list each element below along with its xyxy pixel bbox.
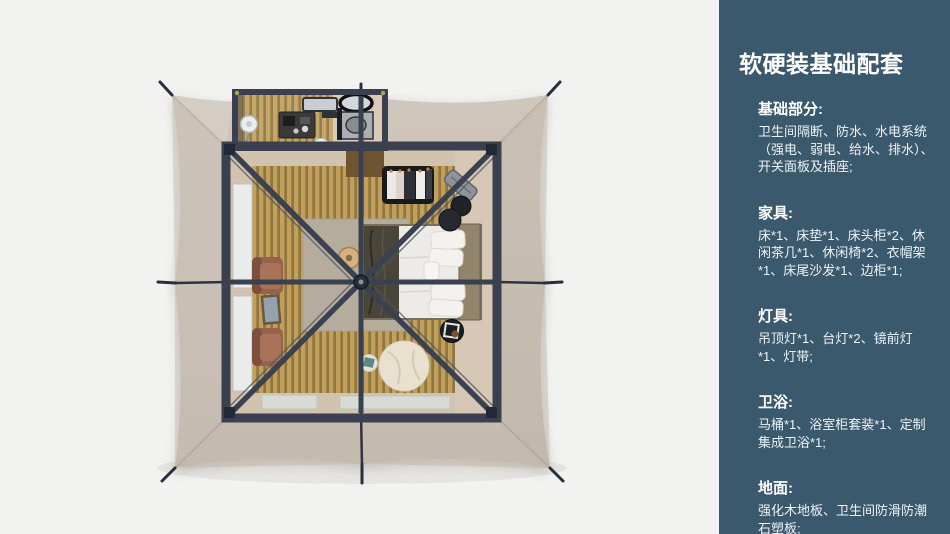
side-table (441, 320, 464, 343)
corner-cap-right (381, 91, 385, 95)
spec-section-basics: 基础部分: 卫生间隔断、防水、水电系统（强电、弱电、给水、排水）、开关面板及插座… (758, 98, 937, 176)
spec-body: 卫生间隔断、防水、水电系统（强电、弱电、给水、排水）、开关面板及插座; (758, 123, 937, 176)
spec-heading: 卫浴: (758, 391, 937, 412)
spec-body: 床*1、床垫*1、床头柜*2、休闲茶几*1、休闲椅*2、衣帽架*1、床尾沙发*1… (758, 227, 937, 280)
armchair-top (252, 257, 283, 294)
spec-heading: 灯具: (758, 305, 937, 326)
tent-top-view-render (0, 0, 719, 534)
spec-section-furniture: 家具: 床*1、床垫*1、床头柜*2、休闲茶几*1、休闲椅*2、衣帽架*1、床尾… (758, 202, 937, 280)
wall-panel (346, 151, 384, 177)
armchair-bottom (252, 328, 283, 366)
garment-pink (396, 171, 404, 199)
wall-mirror (262, 295, 280, 323)
corner-cap-left (235, 91, 239, 95)
spec-section-bathroom: 卫浴: 马桶*1、浴室柜套装*1、定制集成卫浴*1; (758, 391, 937, 451)
spec-body: 马桶*1、浴室柜套装*1、定制集成卫浴*1; (758, 416, 937, 451)
pouf-2 (439, 209, 461, 231)
spec-panel: 软硬装基础配套 基础部分: 卫生间隔断、防水、水电系统（强电、弱电、给水、排水）… (719, 0, 950, 534)
garment-white-2 (416, 171, 425, 199)
window-top (233, 184, 252, 288)
spec-body: 吊顶灯*1、台灯*2、镜前灯*1、灯带; (758, 330, 937, 365)
room (224, 96, 497, 418)
spec-section-lighting: 灯具: 吊顶灯*1、台灯*2、镜前灯*1、灯带; (758, 305, 937, 365)
door-mat-left (262, 395, 317, 409)
shower-unit (337, 108, 373, 140)
door-mat-right (340, 396, 450, 409)
round-mirror (340, 95, 372, 112)
spec-section-flooring: 地面: 强化木地板、卫生间防滑防潮石塑板; (758, 477, 937, 534)
garment-dark (404, 171, 415, 199)
tent-render-svg (0, 0, 719, 534)
wardrobe-rack (382, 166, 434, 204)
slide: 软硬装基础配套 基础部分: 卫生间隔断、防水、水电系统（强电、弱电、给水、排水）… (0, 0, 950, 534)
spec-body: 强化木地板、卫生间防滑防潮石塑板; (758, 502, 937, 534)
window-bottom (233, 296, 252, 391)
spec-list: 基础部分: 卫生间隔断、防水、水电系统（强电、弱电、给水、排水）、开关面板及插座… (758, 98, 937, 534)
spec-heading: 地面: (758, 477, 937, 498)
center-hub-cap (359, 280, 364, 285)
garment-white-1 (387, 171, 396, 199)
panel-title: 软硬装基础配套 (739, 50, 937, 78)
skylight (303, 98, 337, 111)
spec-heading: 基础部分: (758, 98, 937, 119)
vanity-desk (279, 112, 315, 138)
bean-bag (379, 341, 429, 391)
spec-heading: 家具: (758, 202, 937, 223)
garment-navy (426, 169, 432, 199)
